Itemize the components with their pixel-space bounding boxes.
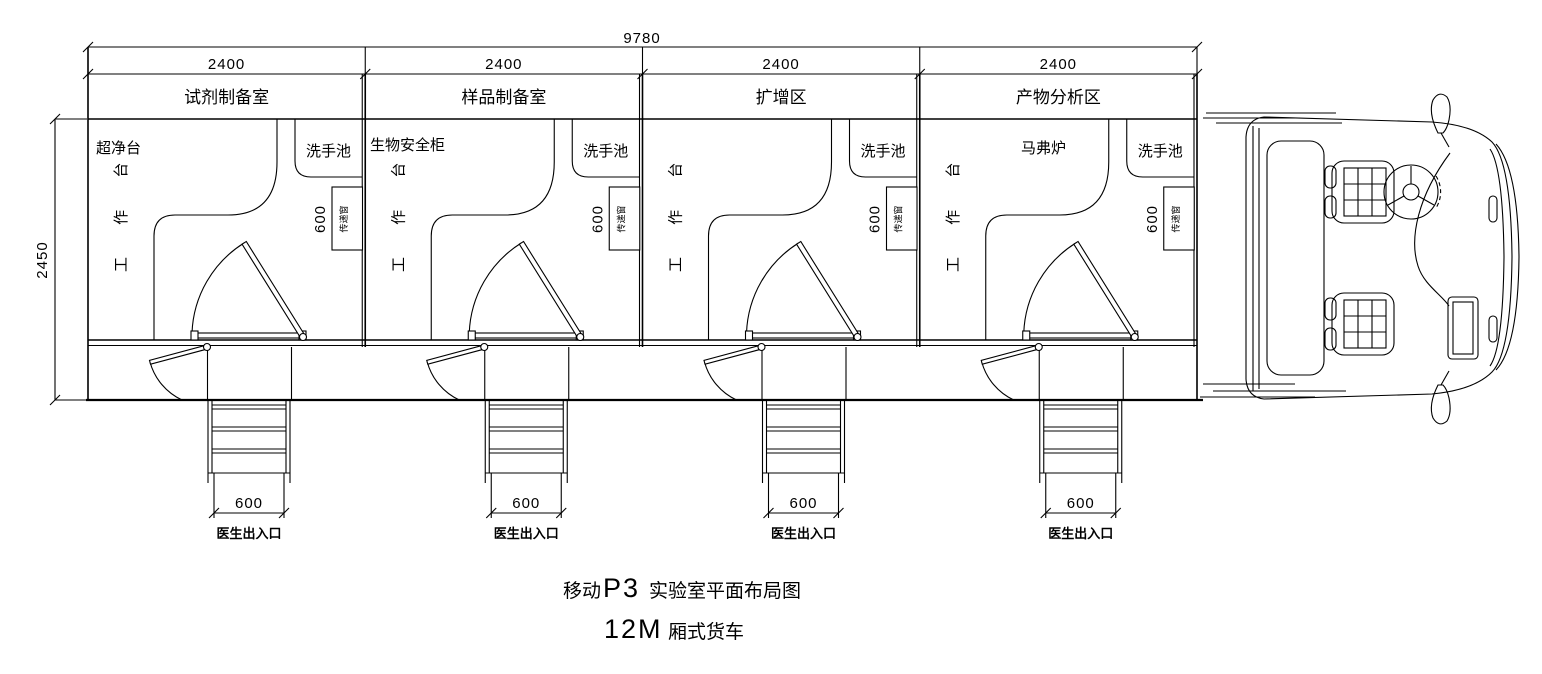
passenger-seat [1325, 293, 1394, 355]
appliance-label: 生物安全柜 [370, 136, 445, 154]
title-prefix: 移动 [563, 580, 601, 602]
rear-bunk [1267, 141, 1324, 375]
doctor-entrance-label: 医生出入口 [1048, 526, 1113, 541]
pass-window-label: 传递窗 [615, 205, 626, 232]
subtitle-latin: 12M [604, 614, 663, 644]
pass-window-dim: 600 [589, 205, 606, 233]
module-width-dim-1: 2400 [208, 56, 245, 73]
title-latin: P3 [603, 573, 640, 603]
dimension-texts: 9780 2400 2400 2400 2400 2450 [34, 30, 1077, 279]
mirror-bottom [1431, 385, 1450, 424]
sink-label: 洗手池 [860, 143, 905, 160]
room-name: 试剂制备室 [184, 88, 269, 107]
workbench-label: 工 作 台 [668, 149, 685, 272]
workbench-label: 工 作 台 [390, 149, 407, 272]
stair-dim: 600 [1067, 495, 1095, 512]
doctor-entrance-label: 医生出入口 [494, 526, 559, 541]
module-width-dim-4: 2400 [1040, 56, 1077, 73]
stair-dim: 600 [235, 495, 263, 512]
pass-window-label: 传递窗 [893, 205, 904, 232]
doctor-entrance-label: 医生出入口 [216, 526, 281, 541]
workbench-label: 工 作 台 [945, 149, 962, 272]
title-block: 移动 P3 实验室平面布局图 12M 厢式货车 [563, 573, 801, 644]
sink-label: 洗手池 [306, 143, 351, 160]
subtitle-suffix: 厢式货车 [668, 621, 744, 643]
appliance-label: 马弗炉 [1021, 140, 1066, 157]
floorplan-page: 9780 2400 2400 2400 2400 2450 试剂制备室 超净台 … [0, 0, 1542, 674]
module-lines-1 [149, 47, 370, 518]
doctor-entrance-label: 医生出入口 [771, 526, 836, 541]
module-lines-2 [427, 47, 648, 518]
module-lines-4 [981, 47, 1202, 518]
marker-light-bottom [1489, 316, 1497, 342]
pass-window-dim: 600 [867, 205, 884, 233]
steering-wheel [1384, 165, 1441, 219]
cab-outline [1246, 117, 1512, 399]
module-lines-3 [704, 47, 925, 518]
room-name: 样品制备室 [461, 88, 546, 107]
room-name: 扩增区 [756, 88, 807, 107]
title-suffix: 实验室平面布局图 [649, 580, 801, 602]
truck-cab-top-view [1200, 94, 1519, 424]
pass-window-dim: 600 [1144, 205, 1161, 233]
pass-window-dim: 600 [312, 205, 329, 233]
mirror-top [1431, 94, 1450, 133]
mobile-p3-lab-floorplan: 9780 2400 2400 2400 2400 2450 试剂制备室 超净台 … [0, 0, 1542, 674]
marker-light-top [1489, 196, 1497, 222]
sink-label: 洗手池 [583, 143, 628, 160]
depth-dim: 2450 [34, 241, 51, 278]
module-width-dim-2: 2400 [485, 56, 522, 73]
sink-label: 洗手池 [1138, 143, 1183, 160]
stair-dim: 600 [512, 495, 540, 512]
stair-dim: 600 [789, 495, 817, 512]
dash-box-inner [1453, 302, 1473, 354]
overall-width-dim: 9780 [623, 30, 660, 47]
workbench-label: 工 作 台 [113, 149, 130, 272]
module-width-dim-3: 2400 [762, 56, 799, 73]
pass-window-label: 传递窗 [338, 205, 349, 232]
pass-window-label: 传递窗 [1170, 205, 1181, 232]
room-name: 产物分析区 [1016, 88, 1101, 107]
